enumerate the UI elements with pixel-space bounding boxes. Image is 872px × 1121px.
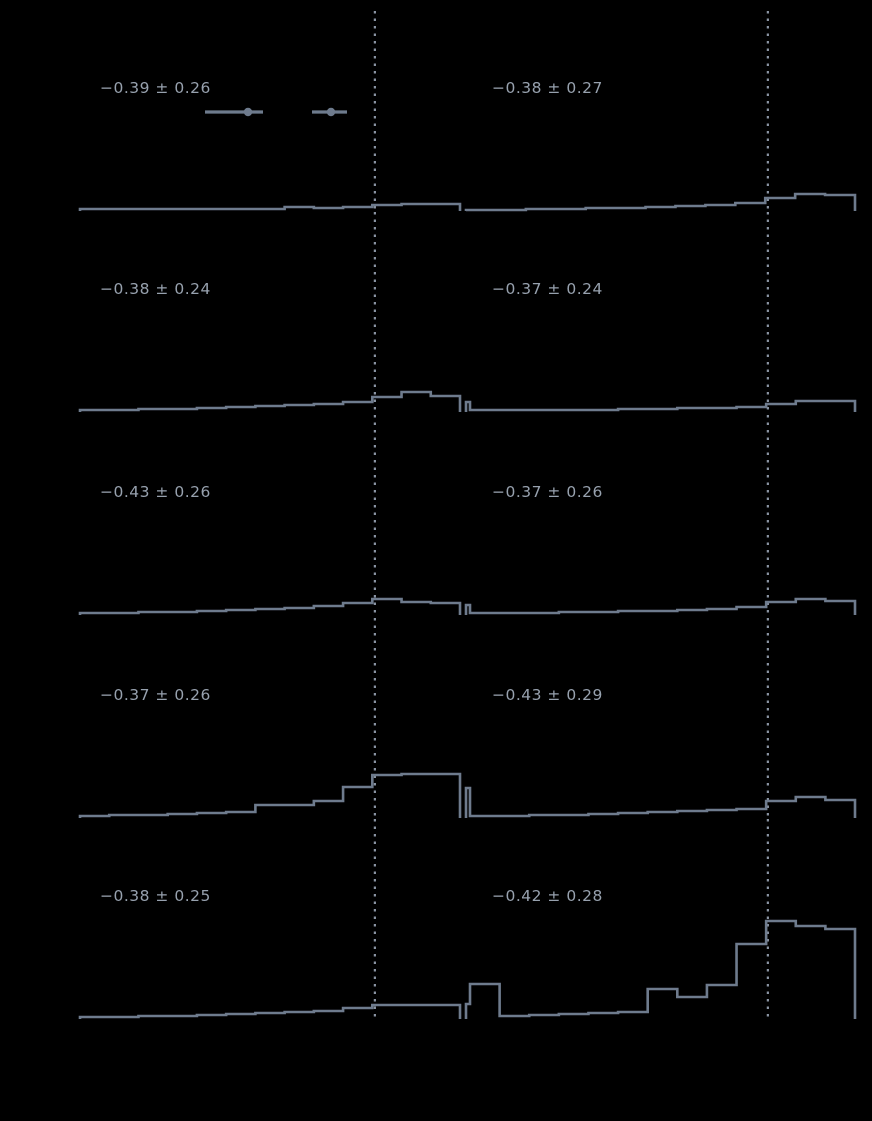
panel-r4c1: −0.37 ± 0.26 [80, 618, 460, 820]
histogram-plot [80, 11, 460, 213]
panel-r2c2: −0.37 ± 0.24 [466, 212, 855, 414]
panel-r5c1: −0.38 ± 0.25 [80, 819, 460, 1021]
figure-canvas: −0.39 ± 0.26 −0.38 ± 0.27 −0.38 ± 0.24 −… [0, 0, 872, 1121]
panel-r3c2: −0.37 ± 0.26 [466, 415, 855, 617]
histogram-plot [466, 212, 855, 414]
panel-r1c1: −0.39 ± 0.26 [80, 11, 460, 213]
panel-r5c2: −0.42 ± 0.28 [466, 819, 855, 1021]
panel-r3c1: −0.43 ± 0.26 [80, 415, 460, 617]
histogram-step-line [80, 204, 460, 211]
histogram-step-line [80, 392, 460, 412]
panel-r4c2: −0.43 ± 0.29 [466, 618, 855, 820]
interval-marker-dot [244, 108, 252, 116]
histogram-plot [80, 415, 460, 617]
histogram-step-line [80, 1005, 460, 1019]
histogram-step-line [80, 599, 460, 615]
histogram-plot [80, 212, 460, 414]
histogram-plot [466, 415, 855, 617]
panel-r2c1: −0.38 ± 0.24 [80, 212, 460, 414]
histogram-plot [466, 11, 855, 213]
histogram-plot [466, 819, 855, 1021]
histogram-plot [466, 618, 855, 820]
histogram-step-line [466, 921, 855, 1019]
histogram-step-line [80, 774, 460, 818]
histogram-step-line [466, 788, 855, 818]
panel-r1c2: −0.38 ± 0.27 [466, 11, 855, 213]
histogram-plot [80, 618, 460, 820]
histogram-step-line [466, 599, 855, 615]
histogram-step-line [466, 194, 855, 211]
interval-marker-dot [327, 108, 335, 116]
histogram-plot [80, 819, 460, 1021]
histogram-step-line [466, 401, 855, 412]
